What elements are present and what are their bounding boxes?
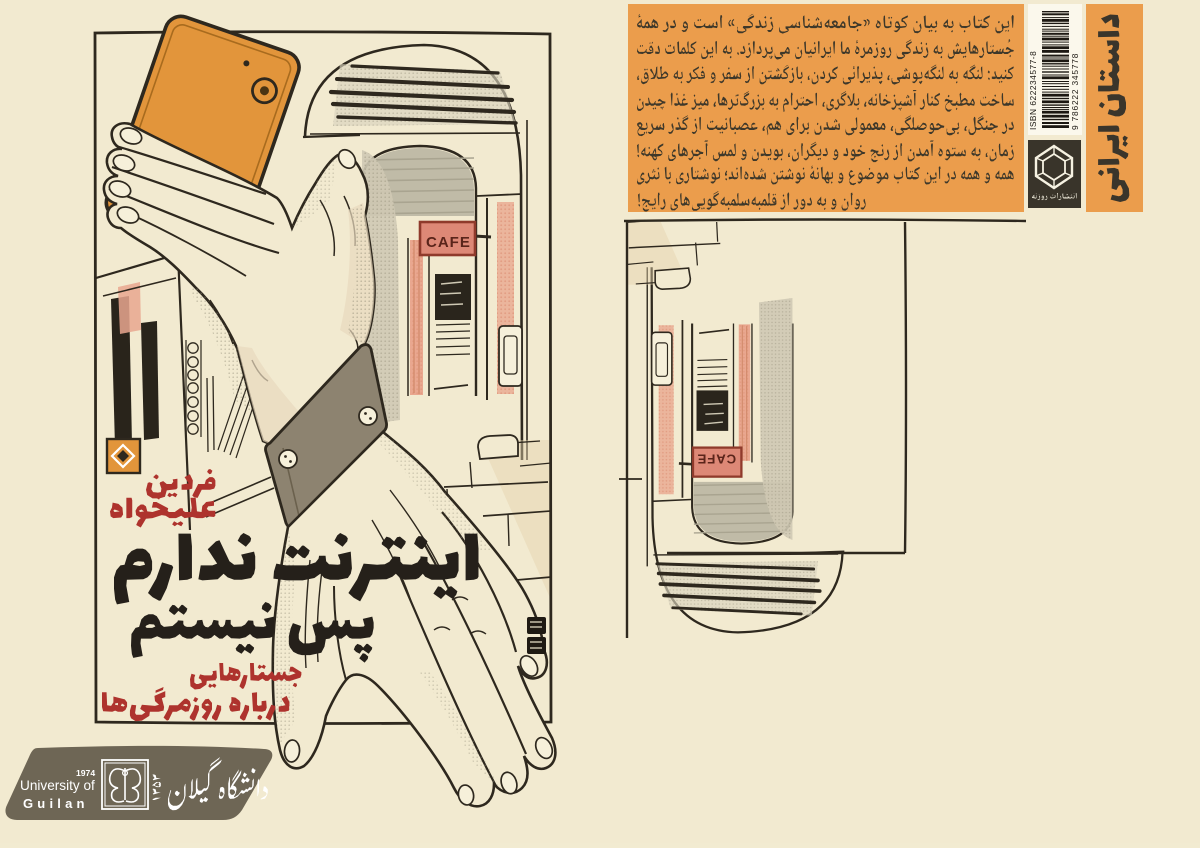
svg-text:9 786222 345778: 9 786222 345778	[1070, 53, 1080, 130]
svg-text:University of: University of	[20, 778, 95, 793]
svg-text:CAFE: CAFE	[426, 234, 471, 251]
svg-text:Guilan: Guilan	[23, 796, 89, 811]
svg-text:CAFE: CAFE	[697, 452, 736, 467]
svg-text:1974: 1974	[76, 768, 95, 778]
svg-text:ISBN 622234577-8: ISBN 622234577-8	[1028, 51, 1038, 130]
